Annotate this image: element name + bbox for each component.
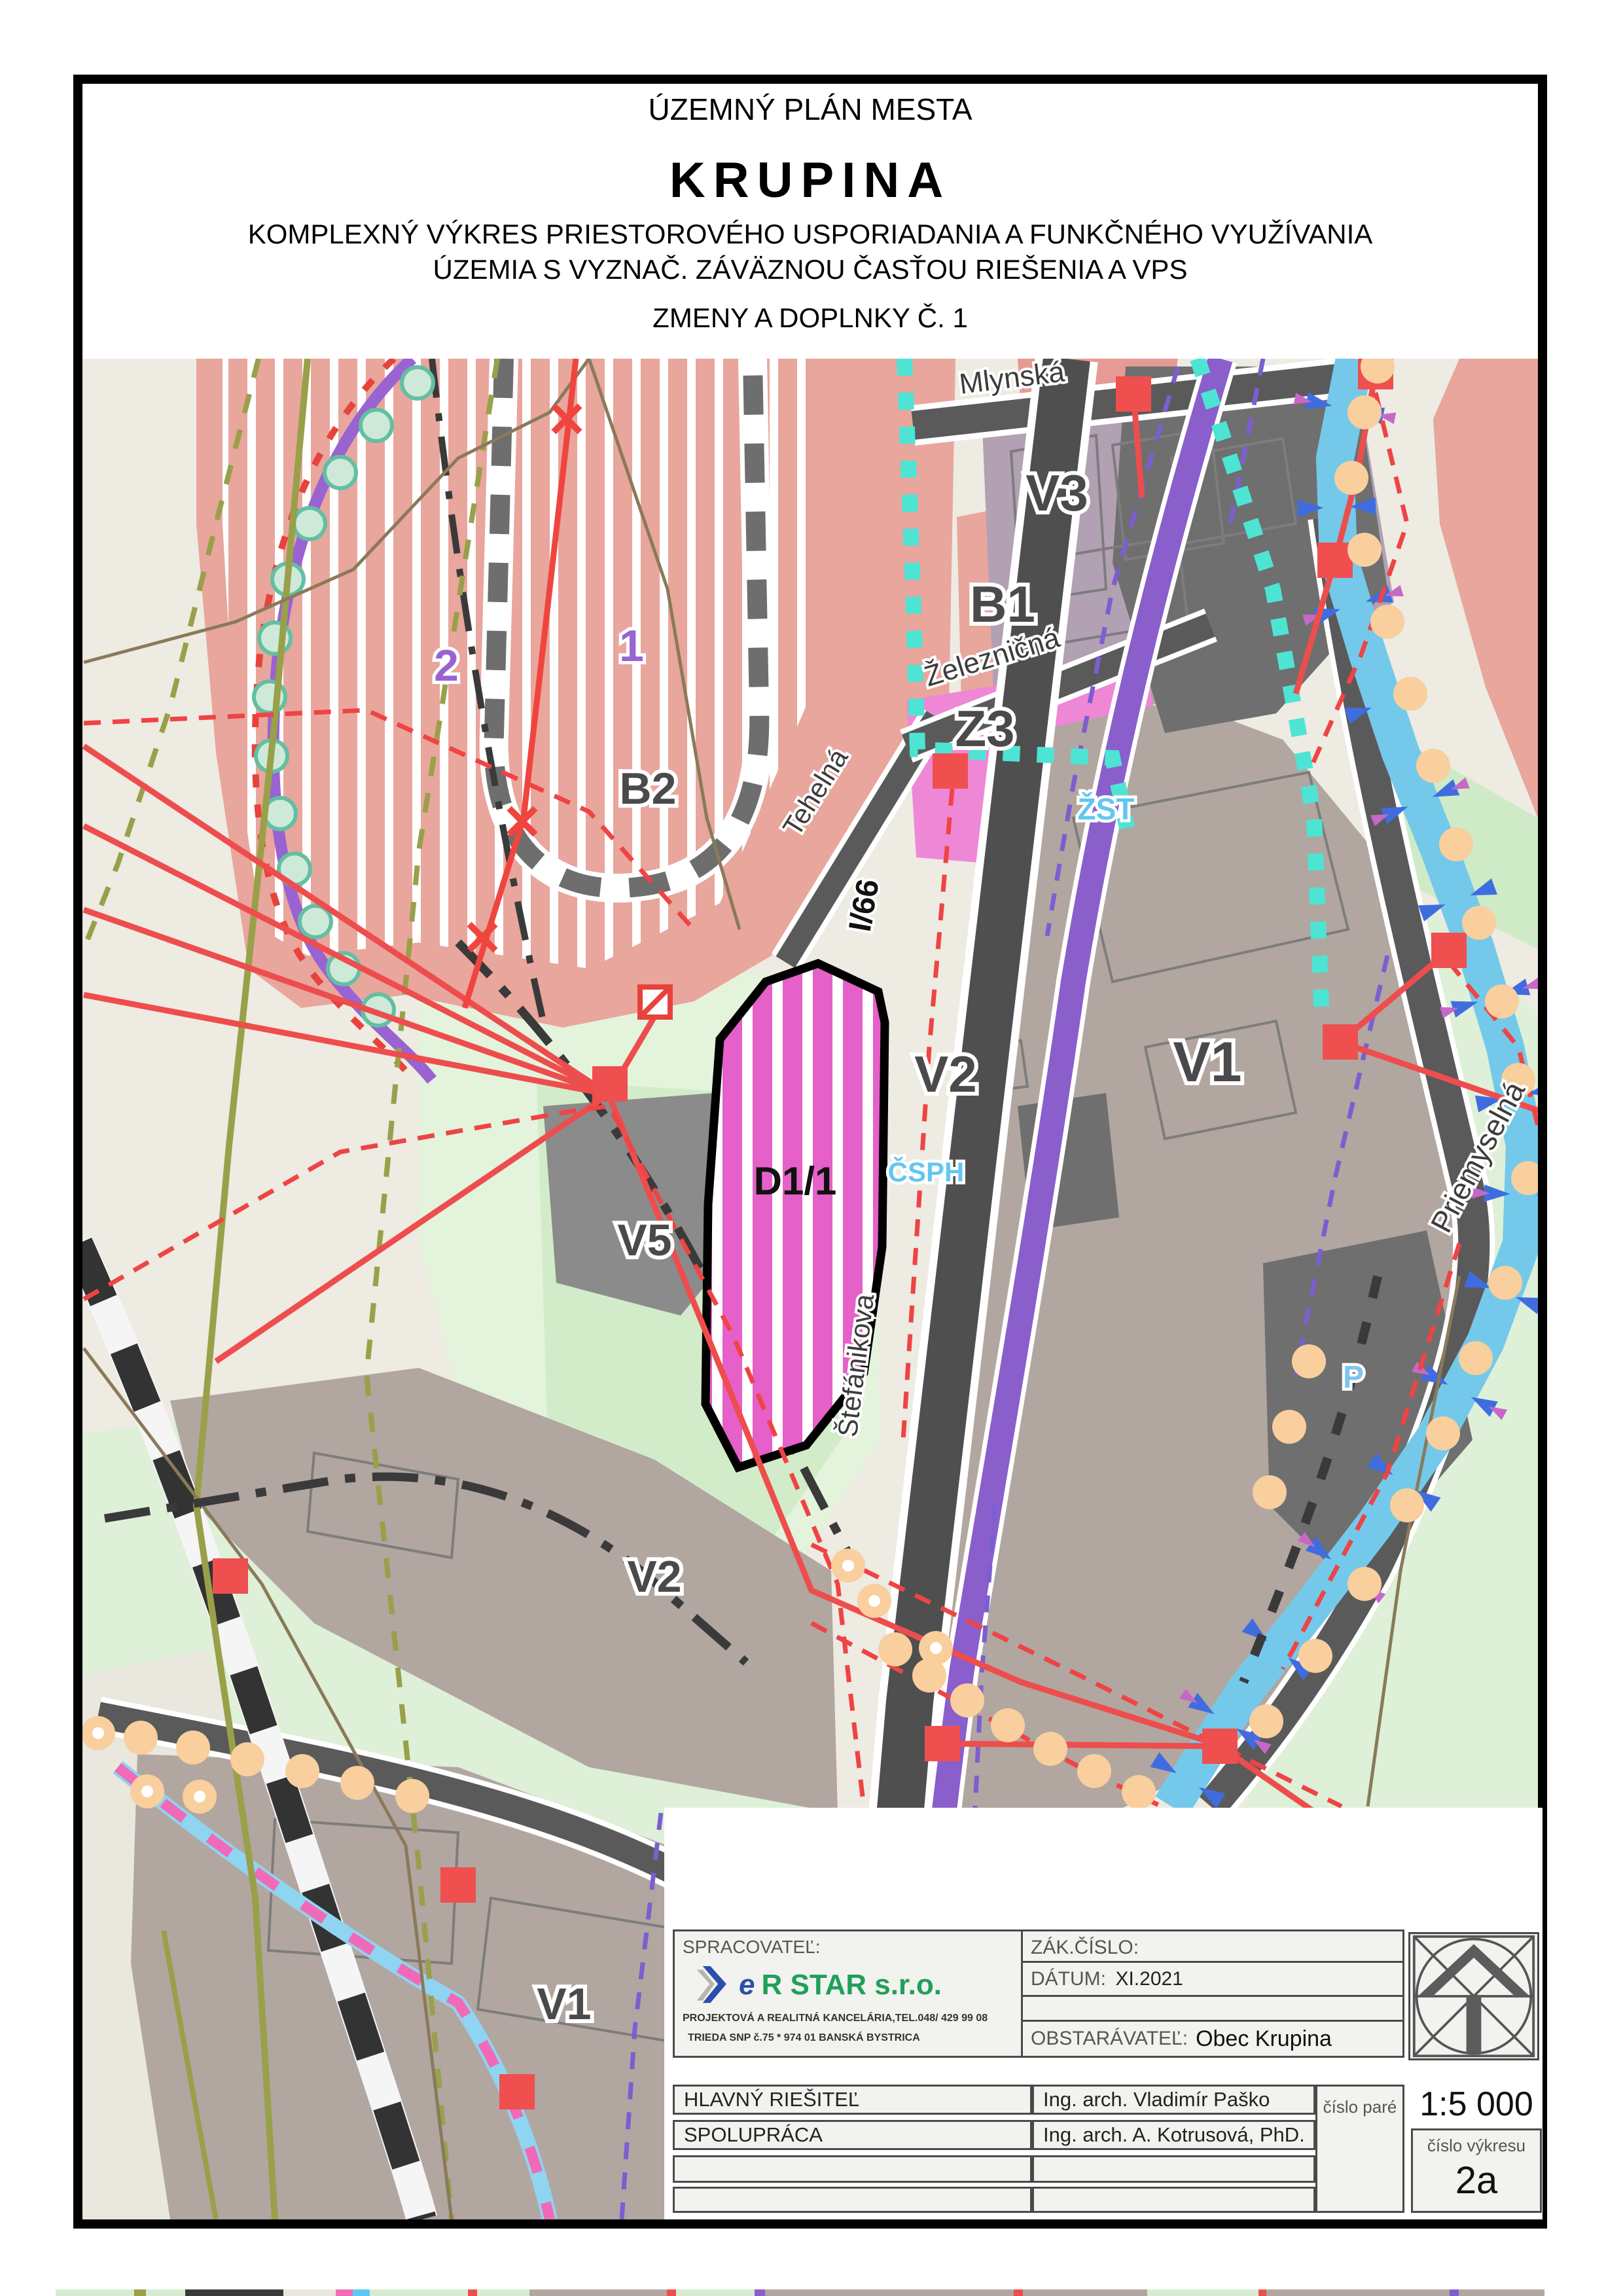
erstar-logo-e: e [739, 1969, 755, 2001]
plan-title-city: KRUPINA [78, 152, 1543, 209]
cislo-pare-box: číslo paré [1315, 2085, 1404, 2213]
red-slash-square [640, 987, 670, 1017]
hlavny-riesitel-value: Ing. arch. Vladimír Paško [1043, 2088, 1270, 2111]
plan-subtitle-line1: KOMPLEXNÝ VÝKRES PRIESTOROVÉHO USPORIADA… [78, 219, 1543, 250]
erstar-logo: e R STAR s.r.o. [694, 1965, 942, 2005]
row-empty-1-label [673, 2155, 1032, 2183]
row-spolupraca-value: Ing. arch. A. Kotrusová, PhD. [1032, 2120, 1315, 2150]
erstar-address-line2: TRIEDA SNP č.75 * 974 01 BANSKÁ BYSTRICA [688, 2032, 920, 2044]
poi-label-zst: ŽST [1078, 792, 1135, 826]
hlavny-riesitel-label: HLAVNÝ RIEŠITEĽ [684, 2088, 859, 2111]
spolupraca-value: Ing. arch. A. Kotrusová, PhD. [1043, 2123, 1305, 2147]
zone-label-v1b: V1 [537, 1979, 591, 2029]
zone-label-v1: V1 [1173, 1031, 1241, 1094]
erstar-address-line1: PROJEKTOVÁ A REALITNÁ KANCELÁRIA,TEL.048… [683, 2013, 988, 2024]
spracovatel-label: SPRACOVATEĽ: [683, 1937, 821, 1958]
bottom-sheet-sliver [56, 2289, 1544, 2296]
plan-sheet-page: { "page_title": { "line1": "ÚZEMNÝ PLÁN … [0, 0, 1623, 2296]
poi-label-csph: ČSPH [888, 1156, 965, 1187]
datum-value: XI.2021 [1115, 1968, 1183, 1990]
cislo-vykresu-label: číslo výkresu [1413, 2136, 1540, 2156]
plan-subtitle-line3: ZMENY A DOPLNKY Č. 1 [78, 302, 1543, 334]
zak-cislo-label: ZÁK.ČÍSLO: [1031, 1937, 1139, 1958]
zone-label-v5: V5 [617, 1215, 671, 1265]
drawing-number-value: 2a [1413, 2159, 1540, 2202]
erstar-logo-name: R STAR s.r.o. [761, 1969, 941, 2001]
erstar-chevron-icon [694, 1966, 732, 2004]
plan-subtitle-line2: ÚZEMIA S VYZNAČ. ZÁVÄZNOU ČASŤOU RIEŠENI… [78, 254, 1543, 285]
zone-label-v2b: V2 [627, 1552, 681, 1602]
zone-label-v2: V2 [914, 1045, 976, 1103]
zone-label-z3: Z3 [955, 700, 1014, 757]
row-hlavny-riesitel-label: HLAVNÝ RIEŠITEĽ [673, 2085, 1032, 2115]
zone-label-b1: B1 [970, 575, 1035, 633]
zone-label-b2: B2 [620, 764, 677, 814]
row-empty-2-value [1032, 2187, 1315, 2213]
obstaravatel-label: OBSTARÁVATEĽ: [1031, 2028, 1188, 2050]
change-number-1: 1 [619, 621, 644, 671]
row-spolupraca-label: SPOLUPRÁCA [673, 2120, 1032, 2150]
datum-label: DÁTUM: [1031, 1968, 1106, 1990]
zone-label-v3: V3 [1026, 464, 1088, 522]
drawing-number-box: číslo výkresu 2a [1411, 2128, 1542, 2213]
title-block-main-box: SPRACOVATEĽ: e R STAR s.r.o. PROJEKTOVÁ … [673, 1929, 1404, 2058]
spolupraca-label: SPOLUPRÁCA [684, 2123, 823, 2147]
plan-title-line1: ÚZEMNÝ PLÁN MESTA [78, 92, 1543, 127]
row-hlavny-riesitel-value: Ing. arch. Vladimír Paško [1032, 2085, 1315, 2115]
obstaravatel-value: Obec Krupina [1196, 2026, 1332, 2052]
cislo-pare-label: číslo paré [1317, 2097, 1402, 2117]
row-empty-2-label [673, 2187, 1032, 2213]
architect-logo-box [1408, 1932, 1539, 2060]
poi-label-p: P [1343, 1360, 1364, 1395]
zone-label-d11: D1/1 [754, 1159, 837, 1203]
change-number-2: 2 [434, 641, 459, 691]
scale-text: 1:5 000 [1411, 2085, 1542, 2121]
row-empty-1-value [1032, 2155, 1315, 2183]
architect-logo-icon [1410, 1934, 1537, 2058]
